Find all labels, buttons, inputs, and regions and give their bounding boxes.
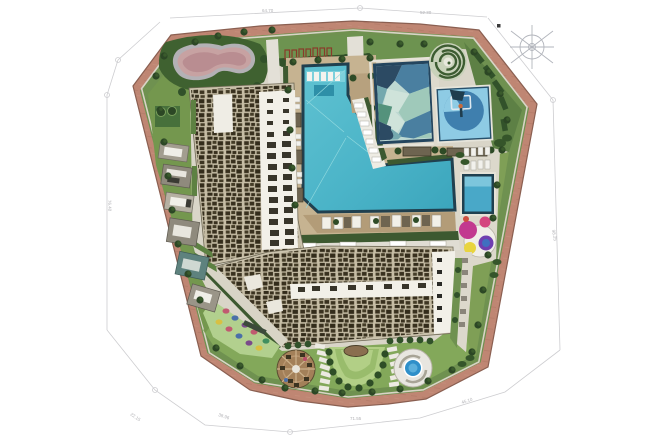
svg-text:64.70: 64.70	[262, 8, 274, 13]
svg-text:76.40: 76.40	[107, 200, 112, 212]
svg-text:71.55: 71.55	[350, 416, 362, 421]
svg-text:52.30: 52.30	[420, 10, 432, 15]
